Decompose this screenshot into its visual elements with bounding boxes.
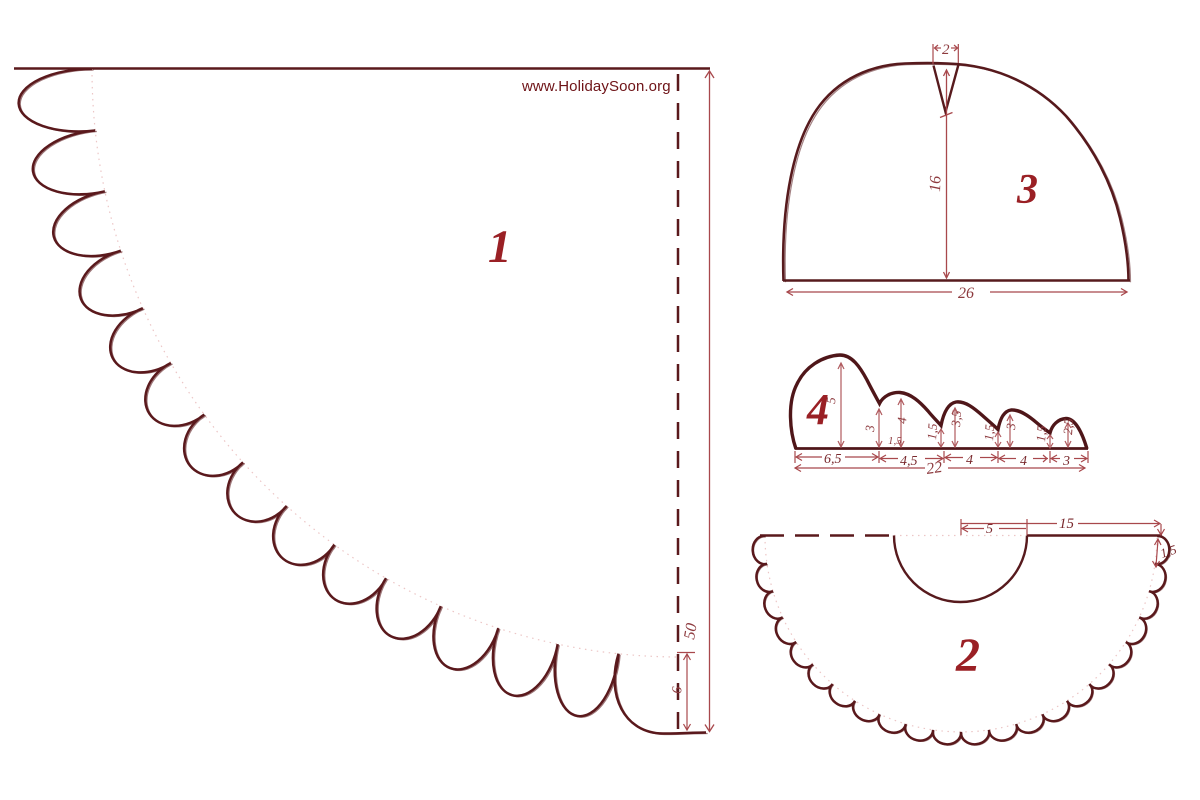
svg-text:3: 3 (1062, 454, 1070, 469)
svg-text:6,5: 6,5 (824, 452, 842, 467)
svg-text:1,5: 1,5 (888, 435, 902, 447)
svg-text:4: 4 (806, 385, 829, 434)
svg-text:22: 22 (925, 459, 943, 478)
svg-text:3: 3 (862, 424, 878, 433)
svg-text:2: 2 (942, 42, 950, 58)
svg-text:5: 5 (986, 522, 993, 537)
svg-text:1,5: 1,5 (981, 423, 997, 441)
svg-text:15: 15 (1059, 516, 1075, 532)
svg-text:3: 3 (1016, 167, 1038, 213)
svg-text:1,5: 1,5 (1033, 424, 1049, 442)
svg-text:6: 6 (670, 686, 686, 694)
svg-text:www.HolidaySoon.org: www.HolidaySoon.org (521, 78, 671, 95)
svg-text:16: 16 (927, 176, 945, 193)
svg-text:2,5: 2,5 (1060, 417, 1076, 435)
svg-text:4,5: 4,5 (900, 454, 918, 469)
svg-text:3: 3 (1003, 422, 1019, 431)
svg-text:1: 1 (488, 221, 512, 273)
svg-text:2: 2 (955, 629, 980, 682)
svg-text:4: 4 (1020, 454, 1027, 469)
svg-text:26: 26 (958, 285, 974, 302)
svg-text:1,5: 1,5 (1158, 541, 1179, 560)
svg-text:50: 50 (681, 622, 701, 641)
svg-text:4: 4 (966, 453, 973, 468)
svg-text:1,5: 1,5 (924, 422, 940, 440)
svg-text:4: 4 (894, 416, 909, 424)
svg-text:3,5: 3,5 (948, 409, 964, 428)
